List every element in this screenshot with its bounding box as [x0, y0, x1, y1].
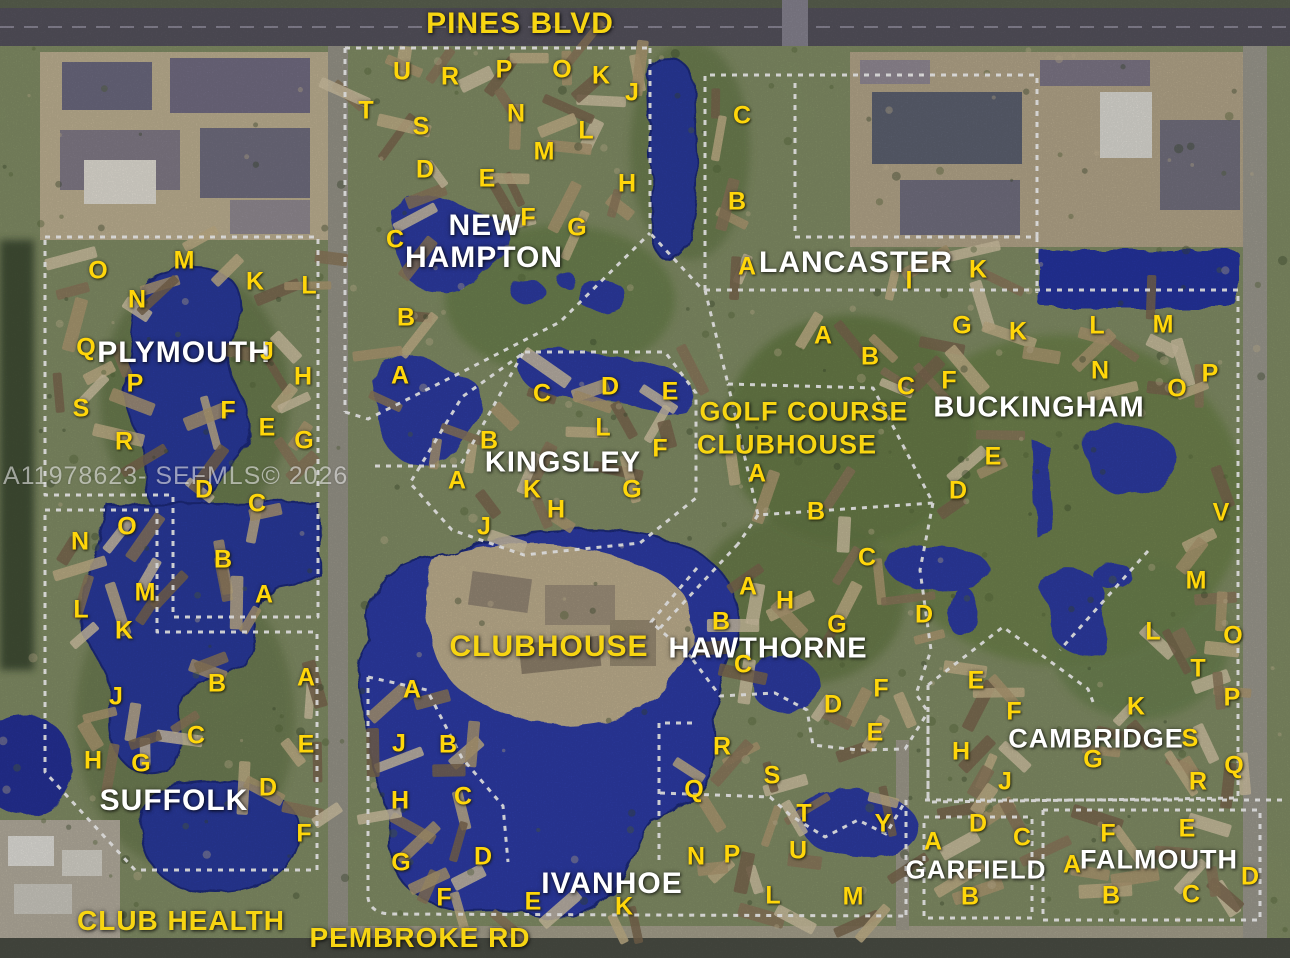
- aerial-map-artwork: [0, 0, 1290, 958]
- photo-grain: [0, 0, 1290, 958]
- community-site-map: NEWHAMPTONURPOKJTSNLMDEHFGCBAKINGSLEYCDE…: [0, 0, 1290, 958]
